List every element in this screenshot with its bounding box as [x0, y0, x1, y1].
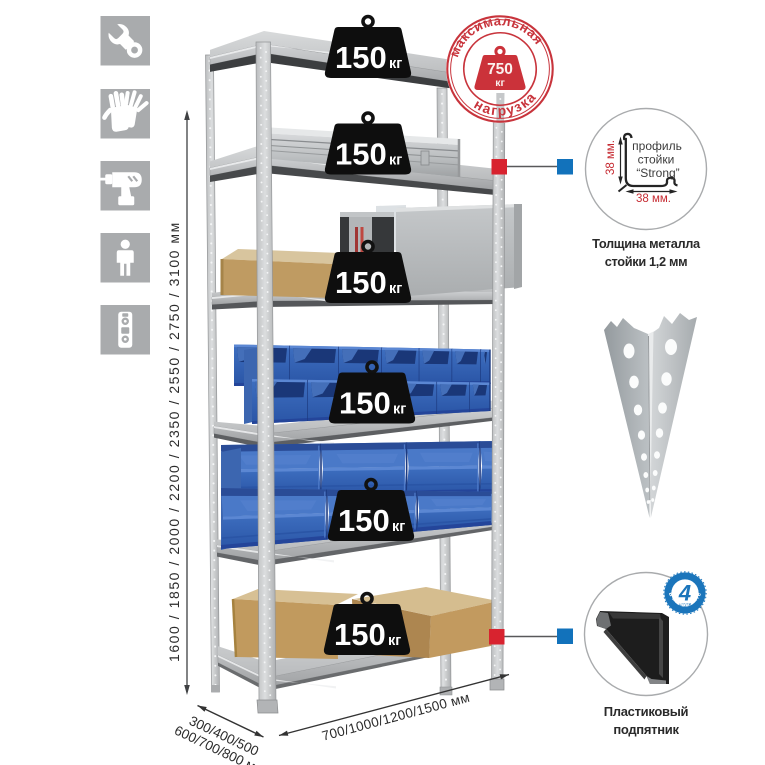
svg-text:профиль: профиль: [632, 139, 682, 153]
svg-text:750: 750: [487, 61, 513, 78]
svg-text:1600 / 1850 / 2000 / 2200 / 23: 1600 / 1850 / 2000 / 2200 / 2350 / 2550 …: [166, 221, 182, 662]
svg-text:38 мм.: 38 мм.: [636, 193, 671, 205]
svg-text:стойки: стойки: [638, 153, 675, 167]
svg-text:кг: кг: [495, 77, 505, 89]
svg-text:“Strong”: “Strong”: [636, 166, 679, 180]
svg-text:стойки 1,2 мм: стойки 1,2 мм: [605, 254, 687, 269]
svg-text:Толщина металла: Толщина металла: [592, 236, 701, 251]
svg-text:38 мм.: 38 мм.: [605, 140, 617, 175]
svg-text:подпятник: подпятник: [613, 722, 679, 737]
svg-text:Пластиковый: Пластиковый: [604, 704, 689, 719]
